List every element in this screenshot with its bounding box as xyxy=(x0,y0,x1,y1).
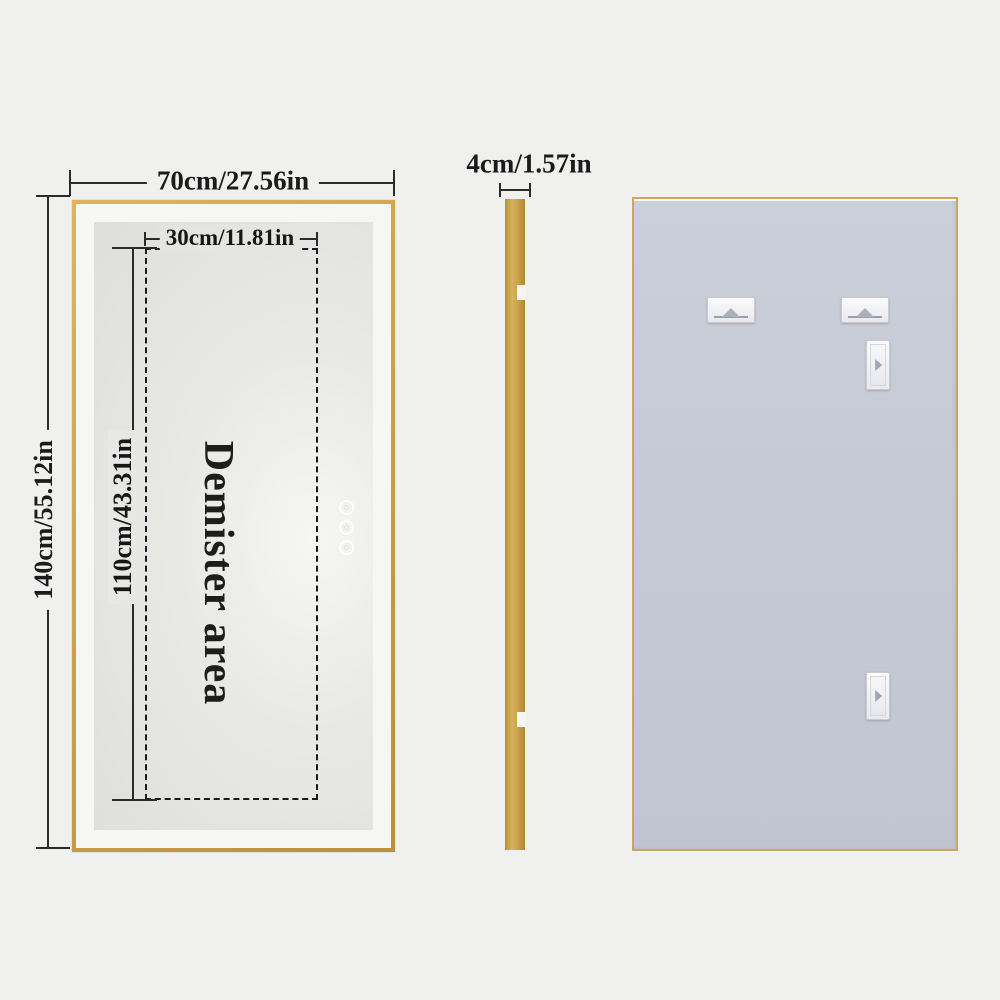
demister-area-label: Demister area xyxy=(194,441,242,706)
mount-slot-horizontal-left xyxy=(707,297,755,323)
keyhole-slot-icon xyxy=(848,306,883,318)
mount-slot-vertical-bottom xyxy=(866,672,890,720)
side-thickness-dimension-label: 4cm/1.57in xyxy=(456,149,601,180)
demister-width-tick-left xyxy=(144,232,146,246)
touch-button-icon xyxy=(339,540,354,555)
front-height-dimension-label: 140cm/55.12in xyxy=(29,430,59,610)
touch-button-icon xyxy=(339,500,354,515)
product-dimension-diagram: 70cm/27.56in 140cm/55.12in Demister area… xyxy=(0,0,1000,1000)
mirror-back-view xyxy=(632,197,958,851)
side-thickness-tick-left xyxy=(499,183,501,197)
demister-width-dimension-label: 30cm/11.81in xyxy=(160,225,300,251)
mount-slot-horizontal-right xyxy=(841,297,889,323)
front-width-dimension-label: 70cm/27.56in xyxy=(147,166,319,197)
demister-height-cap-bottom xyxy=(112,799,157,801)
side-notch xyxy=(517,285,526,300)
touch-button-icon xyxy=(339,520,354,535)
front-height-dimension-tick-bottom xyxy=(36,847,70,849)
demister-width-tick-right xyxy=(316,232,318,246)
demister-height-dimension-label: 110cm/43.31in xyxy=(108,430,138,604)
side-notch xyxy=(517,712,526,727)
demister-height-cap-top xyxy=(112,247,157,249)
front-height-dimension-tick-top xyxy=(36,195,70,197)
mirror-side-view xyxy=(505,199,525,850)
front-width-dimension-tick-right xyxy=(393,170,395,196)
mount-slot-vertical-top xyxy=(866,340,890,390)
side-thickness-dimension-line xyxy=(500,189,530,191)
keyhole-slot-icon xyxy=(714,306,749,318)
front-width-dimension-tick-left xyxy=(69,170,71,196)
side-thickness-tick-right xyxy=(529,183,531,197)
